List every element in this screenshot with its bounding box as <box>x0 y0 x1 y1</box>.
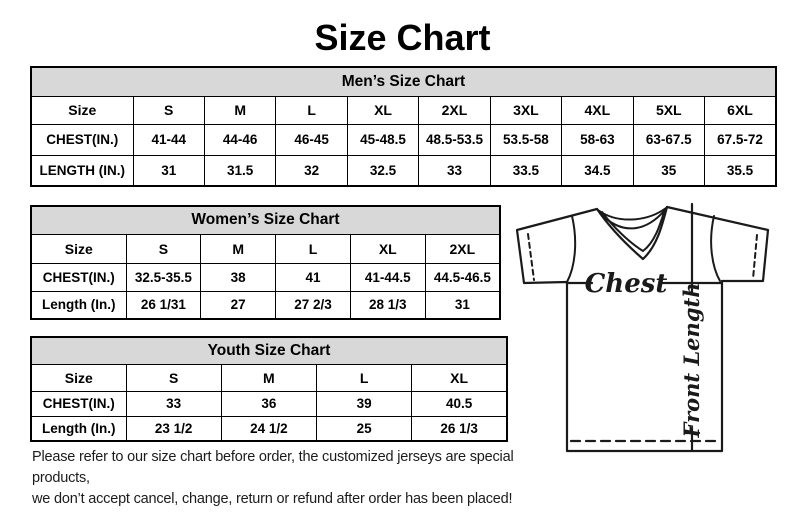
measurement-value-cell: 28 1/3 <box>350 291 425 319</box>
size-label-cell: Size <box>31 234 126 263</box>
row-label-cell: LENGTH (IN.) <box>31 155 133 186</box>
measurement-value-cell: 41-44 <box>133 124 204 155</box>
measurement-value-cell: 27 2/3 <box>276 291 351 319</box>
size-header-cell: S <box>126 234 201 263</box>
size-header-cell: M <box>201 234 276 263</box>
measurement-value-cell: 32.5-35.5 <box>126 263 201 291</box>
page-title: Size Chart <box>0 17 805 59</box>
measurement-value-cell: 33 <box>419 155 490 186</box>
size-header-cell: XL <box>347 96 418 124</box>
measurement-value-cell: 41 <box>276 263 351 291</box>
measurement-value-cell: 26 1/3 <box>412 416 507 441</box>
measurement-value-cell: 34.5 <box>562 155 633 186</box>
measurement-value-cell: 25 <box>317 416 412 441</box>
measurement-value-cell: 32.5 <box>347 155 418 186</box>
collar-band-line <box>602 209 665 251</box>
size-header-cell: XL <box>350 234 425 263</box>
measurement-value-cell: 44-46 <box>204 124 275 155</box>
measurement-value-cell: 38 <box>201 263 276 291</box>
row-label-cell: CHEST(IN.) <box>31 263 126 291</box>
measurement-value-cell: 46-45 <box>276 124 347 155</box>
size-chart-page: Size Chart Men’s Size ChartSizeSMLXL2XL3… <box>0 0 805 512</box>
measurement-value-cell: 32 <box>276 155 347 186</box>
size-header-cell: L <box>276 96 347 124</box>
size-header-cell: 4XL <box>562 96 633 124</box>
left-armhole-seam <box>567 216 575 282</box>
chest-label: Chest <box>585 269 668 299</box>
table-title: Men’s Size Chart <box>31 67 776 96</box>
size-header-cell: S <box>133 96 204 124</box>
measurement-value-cell: 40.5 <box>412 391 507 416</box>
measurement-value-cell: 27 <box>201 291 276 319</box>
row-label-cell: Length (In.) <box>31 416 126 441</box>
right-cuff-stitch <box>753 235 757 279</box>
mens-size-table: Men’s Size ChartSizeSMLXL2XL3XL4XL5XL6XL… <box>30 66 777 187</box>
front-length-label: Front Length <box>679 283 704 439</box>
table-title: Women’s Size Chart <box>31 206 500 234</box>
measurement-value-cell: 48.5-53.5 <box>419 124 490 155</box>
measurement-value-cell: 33 <box>126 391 221 416</box>
row-label-cell: Length (In.) <box>31 291 126 319</box>
measurement-value-cell: 53.5-58 <box>490 124 561 155</box>
size-header-cell: 2XL <box>425 234 500 263</box>
row-label-cell: CHEST(IN.) <box>31 124 133 155</box>
size-header-cell: XL <box>412 364 507 391</box>
measurement-value-cell: 31 <box>133 155 204 186</box>
measurement-value-cell: 63-67.5 <box>633 124 704 155</box>
measurement-value-cell: 31.5 <box>204 155 275 186</box>
measurement-value-cell: 33.5 <box>490 155 561 186</box>
measurement-value-cell: 39 <box>317 391 412 416</box>
size-label-cell: Size <box>31 96 133 124</box>
womens-size-table: Women’s Size ChartSizeSMLXL2XLCHEST(IN.)… <box>30 205 501 320</box>
measurement-value-cell: 58-63 <box>562 124 633 155</box>
size-header-cell: M <box>221 364 316 391</box>
size-header-cell: 3XL <box>490 96 561 124</box>
row-label-cell: CHEST(IN.) <box>31 391 126 416</box>
size-header-cell: 5XL <box>633 96 704 124</box>
measurement-value-cell: 26 1/31 <box>126 291 201 319</box>
tshirt-measurement-diagram: Chest Front Length <box>509 197 801 471</box>
measurement-value-cell: 44.5-46.5 <box>425 263 500 291</box>
right-armhole-seam <box>711 216 720 281</box>
measurement-value-cell: 35.5 <box>705 155 777 186</box>
size-header-cell: L <box>317 364 412 391</box>
size-header-cell: M <box>204 96 275 124</box>
size-header-cell: L <box>276 234 351 263</box>
disclaimer-line-2: we don’t accept cancel, change, return o… <box>32 489 532 510</box>
measurement-value-cell: 45-48.5 <box>347 124 418 155</box>
measurement-value-cell: 35 <box>633 155 704 186</box>
measurement-value-cell: 31 <box>425 291 500 319</box>
size-header-cell: 6XL <box>705 96 777 124</box>
size-header-cell: S <box>126 364 221 391</box>
measurement-value-cell: 67.5-72 <box>705 124 777 155</box>
disclaimer-line-1: Please refer to our size chart before or… <box>32 447 532 489</box>
youth-size-table: Youth Size ChartSizeSMLXLCHEST(IN.)33363… <box>30 336 508 442</box>
measurement-value-cell: 41-44.5 <box>350 263 425 291</box>
shirt-outline <box>517 207 768 451</box>
measurement-value-cell: 23 1/2 <box>126 416 221 441</box>
left-cuff-stitch <box>528 234 534 280</box>
size-label-cell: Size <box>31 364 126 391</box>
table-title: Youth Size Chart <box>31 337 507 364</box>
measurement-value-cell: 24 1/2 <box>221 416 316 441</box>
measurement-value-cell: 36 <box>221 391 316 416</box>
order-disclaimer: Please refer to our size chart before or… <box>32 447 532 510</box>
size-header-cell: 2XL <box>419 96 490 124</box>
